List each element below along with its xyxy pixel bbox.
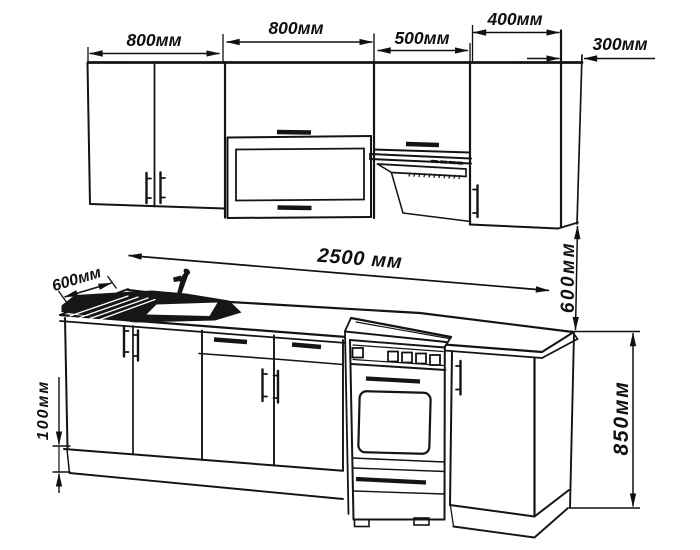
svg-text:100мм: 100мм [35,380,52,440]
svg-text:800мм: 800мм [126,30,181,50]
svg-text:800мм: 800мм [268,18,323,38]
svg-text:300мм: 300мм [592,34,647,54]
svg-text:850мм: 850мм [610,380,633,455]
svg-text:400мм: 400мм [486,9,542,29]
svg-text:600мм: 600мм [558,241,579,313]
svg-text:500мм: 500мм [394,28,449,48]
